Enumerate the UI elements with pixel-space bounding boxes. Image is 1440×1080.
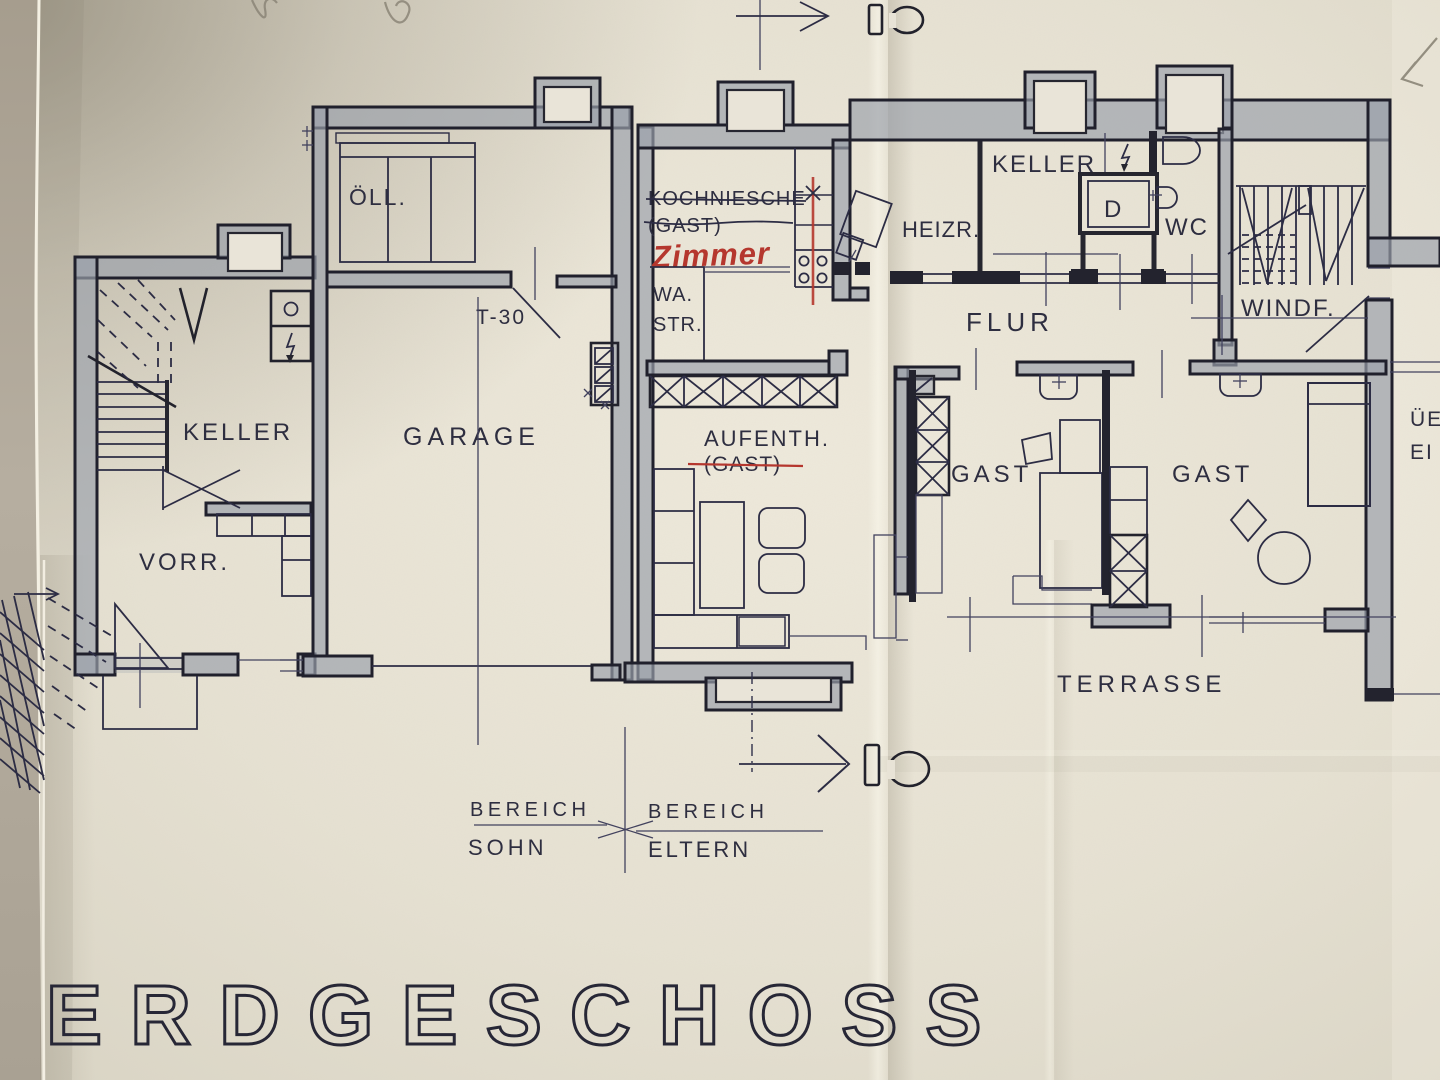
svg-text:SOHN: SOHN	[468, 835, 548, 860]
svg-text:EI: EI	[1410, 441, 1434, 464]
svg-text:HEIZR.: HEIZR.	[902, 217, 980, 242]
svg-text:ÜE: ÜE	[1410, 408, 1440, 431]
svg-text:FLUR: FLUR	[966, 307, 1054, 337]
svg-text:VORR.: VORR.	[139, 549, 230, 576]
svg-text:Zimmer: Zimmer	[650, 236, 771, 275]
svg-text:ELTERN: ELTERN	[648, 837, 751, 862]
svg-text:D: D	[1104, 196, 1121, 223]
svg-text:WC: WC	[1165, 214, 1209, 241]
svg-text:BEREICH: BEREICH	[470, 799, 590, 821]
svg-text:(GAST): (GAST)	[648, 215, 722, 237]
svg-text:TERRASSE: TERRASSE	[1057, 671, 1226, 698]
svg-text:T-30: T-30	[476, 306, 526, 329]
svg-text:GAST: GAST	[1172, 461, 1253, 488]
svg-text:AUFENTH.: AUFENTH.	[704, 426, 830, 451]
svg-text:ÖLL.: ÖLL.	[349, 184, 407, 210]
svg-text:GAST: GAST	[951, 461, 1032, 488]
svg-text:ERDGESCHOSS: ERDGESCHOSS	[46, 968, 1010, 1062]
svg-text:GARAGE: GARAGE	[403, 423, 540, 451]
svg-text:STR.: STR.	[653, 314, 703, 336]
svg-text:WA.: WA.	[653, 284, 693, 306]
svg-text:KELLER: KELLER	[183, 419, 293, 446]
svg-text:BEREICH: BEREICH	[648, 801, 768, 823]
